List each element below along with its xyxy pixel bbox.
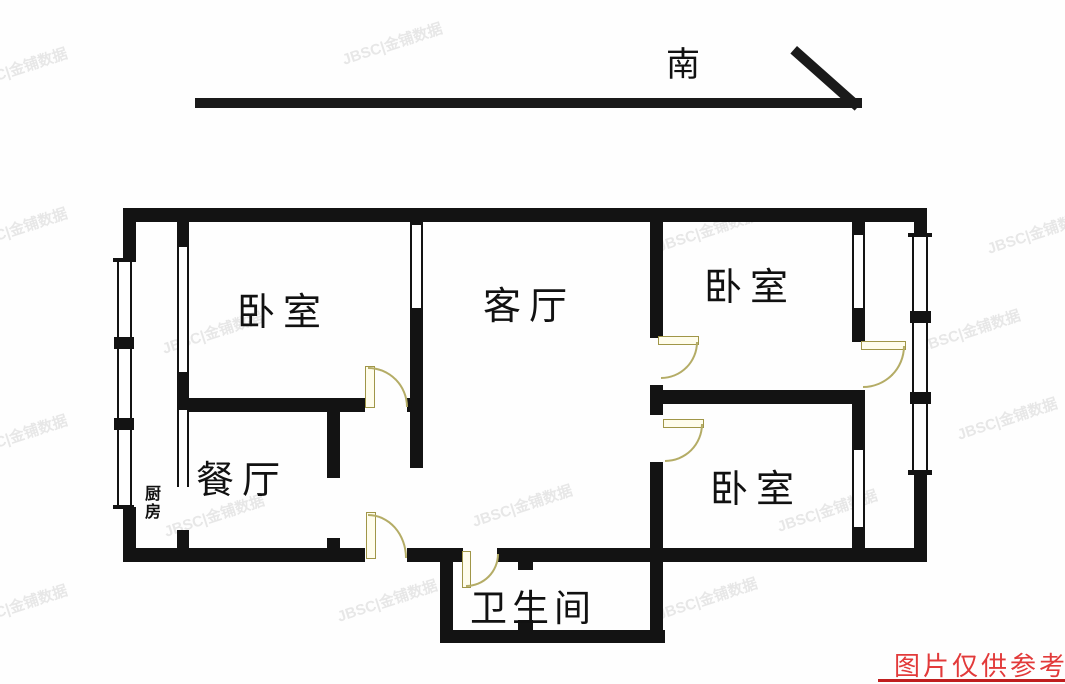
door-arc-bedroom-nw [368,367,408,407]
watermark: JBSC|金铺数据 [0,202,70,254]
window-cap [908,233,932,237]
wall-living-east [650,208,663,338]
watermark: JBSC|金铺数据 [0,579,70,631]
window-kitchen-lower [177,410,189,487]
room-label-bedroom-nw: 卧室 [237,281,329,336]
window-balcony-lower [852,450,865,527]
wall-west-exterior [123,208,136,262]
watermark: JBSC|金铺数据 [0,409,70,461]
disclaimer-text: 图片仅供参考 [894,646,1065,683]
watermark: JBSC|金铺数据 [984,206,1065,258]
window-kitchen-upper [177,247,189,372]
floorplan-image: JBSC|金铺数据 JBSC|金铺数据 JBSC|金铺数据 JBSC|金铺数据 … [0,0,1065,684]
window-cap [908,470,932,475]
door-arc-balcony [863,346,905,388]
disclaimer-underline [878,679,1065,682]
window-bar [910,392,931,404]
watermark: JBSC|金铺数据 [917,304,1023,356]
watermark: JBSC|金铺数据 [954,392,1060,444]
room-label-dining: 餐厅 [196,449,288,504]
south-direction-label: 南 [666,37,700,86]
room-label-kitchen: 厨房 [139,485,163,521]
wall-bedrooms-divider [650,390,865,404]
room-label-living: 客厅 [483,275,575,330]
door-arc-entry [368,514,407,558]
wall-balcony [852,308,865,342]
watermark: JBSC|金铺数据 [334,574,440,626]
south-arrow-shaft [195,98,862,108]
wall-hall-partition [327,405,340,478]
window-balcony-upper [852,235,865,308]
wall-balcony [852,527,865,562]
wall-south-exterior [407,548,463,562]
window-cap [113,258,134,262]
wall-hall-partition [327,538,340,562]
window-bar [114,337,134,349]
window-cap [113,505,134,509]
wall-balcony [852,208,865,235]
watermark: JBSC|金铺数据 [0,42,70,94]
window-bar [114,418,134,430]
wall-bathroom-stub [518,560,533,570]
wall-living-east [650,462,663,643]
wall-north-exterior [123,208,927,222]
room-label-bedroom-ne: 卧室 [704,256,796,311]
wall-east-exterior [914,473,927,562]
window-living-west [410,225,423,308]
wall-living-west [410,208,423,225]
watermark: JBSC|金铺数据 [654,572,760,624]
room-label-bedroom-se: 卧室 [710,458,802,513]
window-east [912,237,928,473]
door-arc-bedroom-se [665,424,703,462]
window-bar [910,311,931,323]
watermark: JBSC|金铺数据 [339,17,445,69]
wall-kitchen-partition [177,530,189,562]
door-arc-bedroom-ne [661,342,698,379]
room-label-bathroom: 卫生间 [470,578,596,632]
window-west [117,262,132,507]
watermark: JBSC|金铺数据 [469,479,575,531]
wall-kitchen-partition [177,208,189,247]
wall-living-west [410,308,423,468]
wall-balcony [852,392,865,450]
